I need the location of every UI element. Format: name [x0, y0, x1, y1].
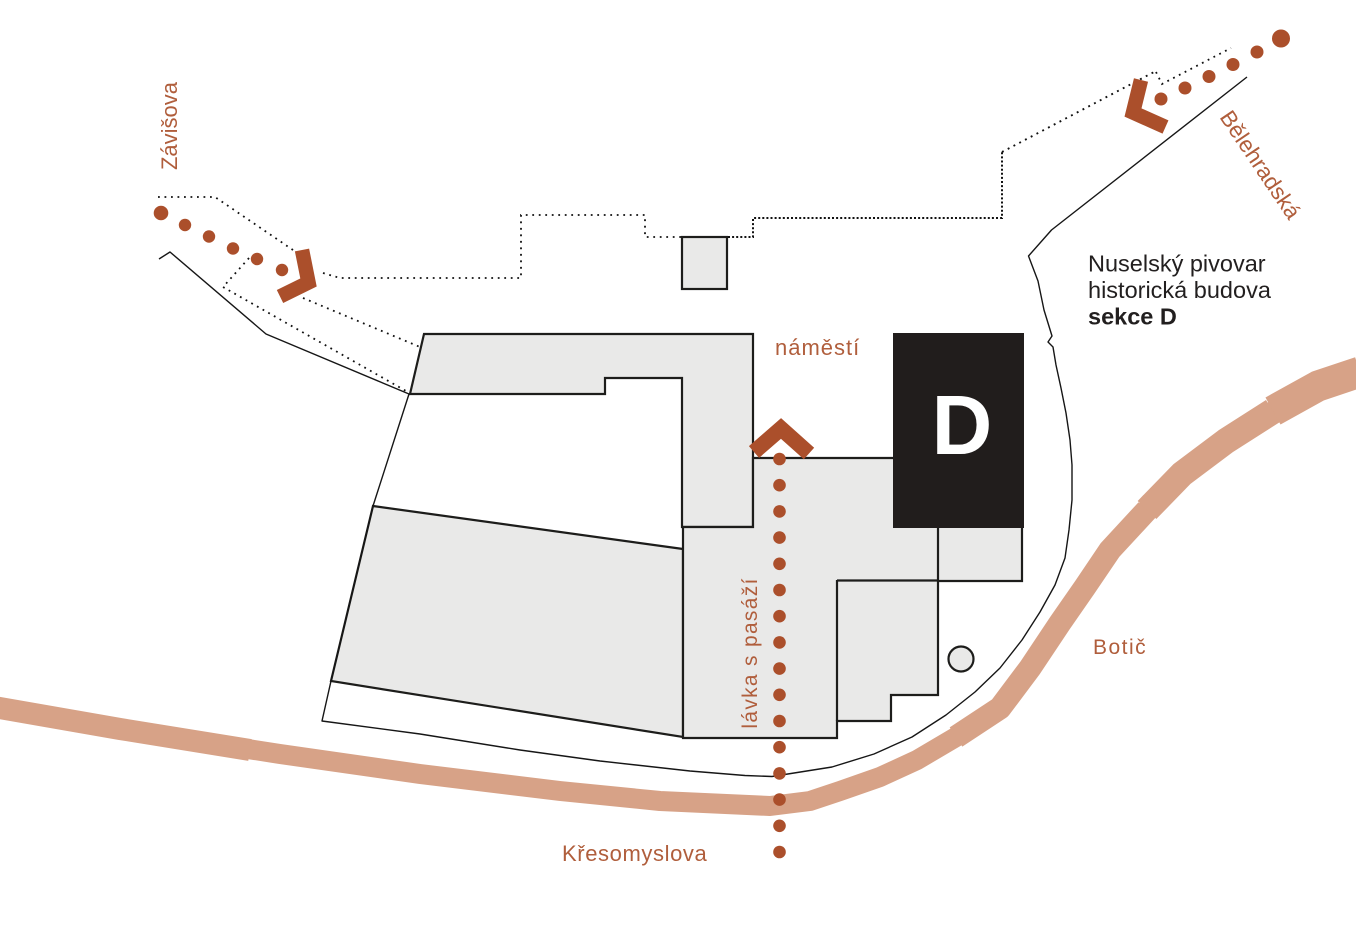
svg-text:Botič: Botič [1093, 636, 1147, 659]
svg-text:historická budova: historická budova [1088, 277, 1272, 303]
svg-text:sekce D: sekce D [1088, 304, 1177, 330]
svg-text:Závišova: Závišova [157, 81, 182, 170]
svg-text:D: D [932, 378, 993, 472]
svg-text:Nuselský pivovar: Nuselský pivovar [1088, 251, 1266, 277]
svg-text:náměstí: náměstí [775, 335, 860, 360]
svg-text:Křesomyslova: Křesomyslova [562, 841, 708, 866]
svg-text:lávka s pasáží: lávka s pasáží [739, 577, 762, 728]
